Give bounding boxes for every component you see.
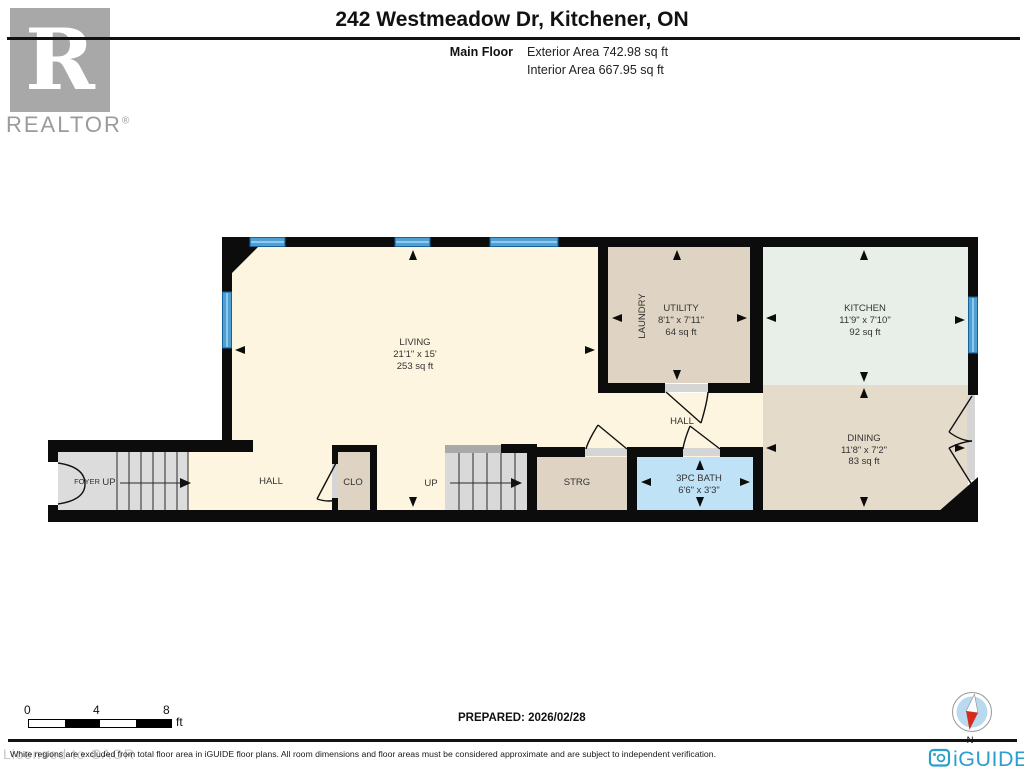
laundry-label: LAUNDRY [637, 293, 648, 339]
hall-center-label: HALL [670, 416, 694, 427]
hall-left-label: HALL [259, 476, 283, 487]
iguide-logo: iGUIDE [930, 747, 1024, 767]
storage-label: STRG [564, 477, 590, 488]
bath-dims: 6'6" x 3'3" [678, 485, 720, 496]
disclaimer-text: White regions are excluded from total fl… [10, 749, 910, 759]
scale-bar [28, 719, 172, 728]
utility-area: 64 sq ft [665, 327, 697, 338]
scale-tick-8: 8 [163, 703, 170, 717]
iguide-wordmark: iGUIDE [953, 747, 1024, 767]
patio-door-pocket [967, 395, 975, 480]
scale-tick-4: 4 [93, 703, 100, 717]
closet-label: CLO [343, 477, 363, 488]
foyer-label: FOYER [74, 477, 100, 486]
scale-unit-label: ft [176, 715, 183, 729]
footer-divider [8, 739, 1017, 742]
foyer-up-label: UP [102, 477, 115, 488]
bath-label: 3PC BATH [676, 473, 722, 484]
dining-label: DINING [847, 433, 880, 444]
scale-tick-0: 0 [24, 703, 31, 717]
living-dims: 21'1" x 15' [393, 349, 437, 360]
hall-left-floor [188, 452, 445, 510]
living-label: LIVING [399, 337, 430, 348]
floorplan-page: R REALTOR® 242 Westmeadow Dr, Kitchener,… [0, 0, 1024, 767]
camera-icon [930, 750, 949, 766]
stairs-upper-halfwall [445, 445, 501, 453]
dining-dims: 11'8" x 7'2" [841, 445, 887, 456]
utility-dims: 8'1" x 7'11" [658, 315, 704, 326]
kitchen-label: KITCHEN [844, 303, 886, 314]
dining-area: 83 sq ft [848, 456, 880, 467]
kitchen-dims: 11'9" x 7'10" [839, 315, 890, 326]
floor-plan: LIVING 21'1" x 15' 253 sq ft LAUNDRY UTI… [0, 0, 1024, 767]
kitchen-area: 92 sq ft [849, 327, 881, 338]
compass-icon: N [953, 693, 992, 747]
prepared-date: PREPARED: 2026/02/28 [458, 712, 586, 724]
utility-label: UTILITY [663, 303, 699, 314]
living-area: 253 sq ft [397, 361, 434, 372]
stairs-up-label: UP [424, 478, 437, 489]
floor-fills [58, 247, 975, 512]
